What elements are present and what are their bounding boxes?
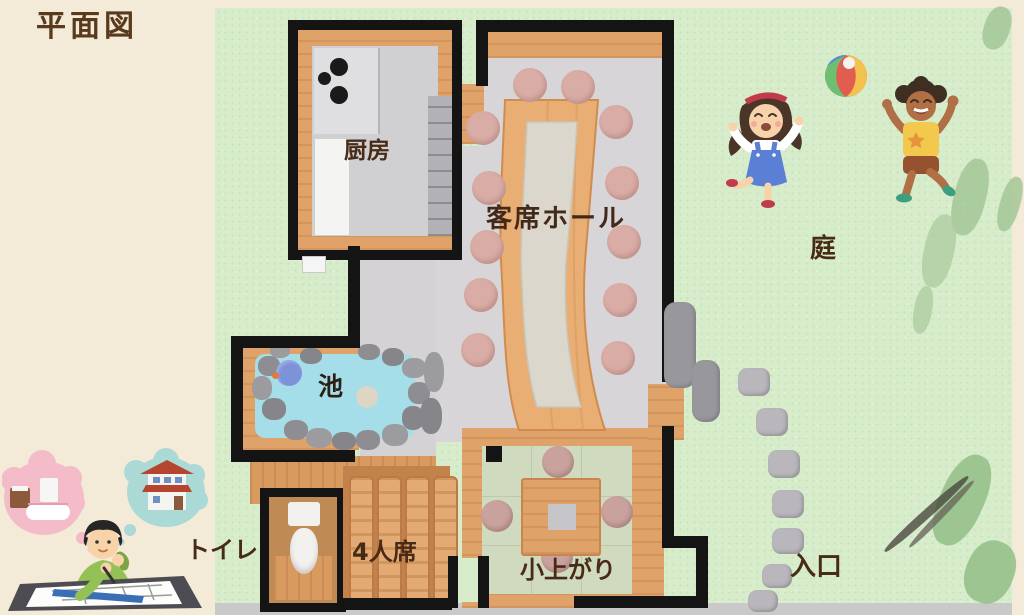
- floor-cushion: [542, 446, 574, 478]
- floor-cushion: [481, 500, 513, 532]
- pond-rock: [356, 430, 380, 450]
- wall-corridor-left: [348, 246, 360, 348]
- wall-tatami-bottom: [574, 596, 708, 608]
- pond-basin: [276, 360, 302, 386]
- pond-rock: [424, 352, 444, 392]
- stool: [603, 283, 637, 317]
- wall-pond-bottom: [231, 450, 355, 462]
- pond-rock: [284, 420, 308, 440]
- booth-label: 4人席: [352, 540, 417, 564]
- pond-rock: [358, 344, 380, 360]
- stool: [513, 68, 547, 102]
- stepping-stone: [772, 490, 804, 518]
- wall-hall-left-stub: [476, 20, 488, 86]
- house-thought-bubble: [118, 448, 209, 546]
- floor-plan-page: 平面図: [0, 0, 1024, 615]
- pond-rock: [262, 398, 286, 420]
- page-title: 平面図: [36, 12, 138, 42]
- toilet-wall-outline: [260, 488, 346, 612]
- entrance-label: 入口: [790, 554, 842, 580]
- stool: [601, 341, 635, 375]
- stool: [461, 333, 495, 367]
- kitchen-label: 厨房: [344, 140, 390, 163]
- stepping-stone: [692, 360, 720, 422]
- wall-pond-top: [231, 336, 353, 348]
- stepping-stone: [738, 368, 770, 396]
- floor-cushion: [601, 496, 633, 528]
- hall-upper-wood-band: [482, 30, 668, 58]
- pond-rock: [402, 358, 426, 378]
- tatami-table-center: [548, 504, 576, 530]
- pond-rock: [306, 428, 332, 448]
- ac-unit: [302, 256, 326, 273]
- wall-pond-left: [231, 336, 243, 462]
- garden-label: 庭: [810, 236, 836, 262]
- wall-booth-bottom: [340, 598, 452, 610]
- hall-counter-table: [493, 92, 615, 438]
- pond-rock: [300, 348, 322, 364]
- girl-playing-illustration: [722, 88, 812, 208]
- pond-basin-fish: [272, 372, 279, 379]
- stool: [599, 105, 633, 139]
- architect-drawing-plan-illustration: [2, 448, 212, 613]
- stool: [561, 70, 595, 104]
- wall-hall-corner: [486, 446, 502, 462]
- stool: [466, 111, 500, 145]
- pond-rock: [420, 398, 442, 434]
- hall-label: 客席ホール: [486, 206, 626, 232]
- stepping-stone: [748, 590, 778, 612]
- tatami-label: 小上がり: [520, 558, 616, 582]
- beach-ball-icon: [824, 54, 868, 98]
- stepping-stone: [762, 564, 792, 588]
- pond-rock: [382, 348, 404, 366]
- stool: [470, 230, 504, 264]
- pond-stone-lantern: [356, 386, 378, 408]
- stool: [605, 166, 639, 200]
- wall-tatami-right: [662, 426, 674, 542]
- pond-rock: [252, 376, 272, 400]
- boy-playing-illustration: [876, 76, 961, 206]
- pond-rock: [382, 424, 408, 446]
- wall-tatami-left-low: [478, 556, 489, 608]
- stepping-stone: [768, 450, 800, 478]
- drawing-board: [8, 563, 202, 612]
- wall-hall-top: [476, 20, 674, 32]
- stool: [464, 278, 498, 312]
- stepping-stone: [772, 528, 804, 554]
- stepping-stone: [756, 408, 788, 436]
- stool: [472, 171, 506, 205]
- pond-rock: [332, 432, 356, 450]
- bathroom-thought-bubble: [2, 450, 95, 553]
- pond-label: 池: [318, 374, 343, 399]
